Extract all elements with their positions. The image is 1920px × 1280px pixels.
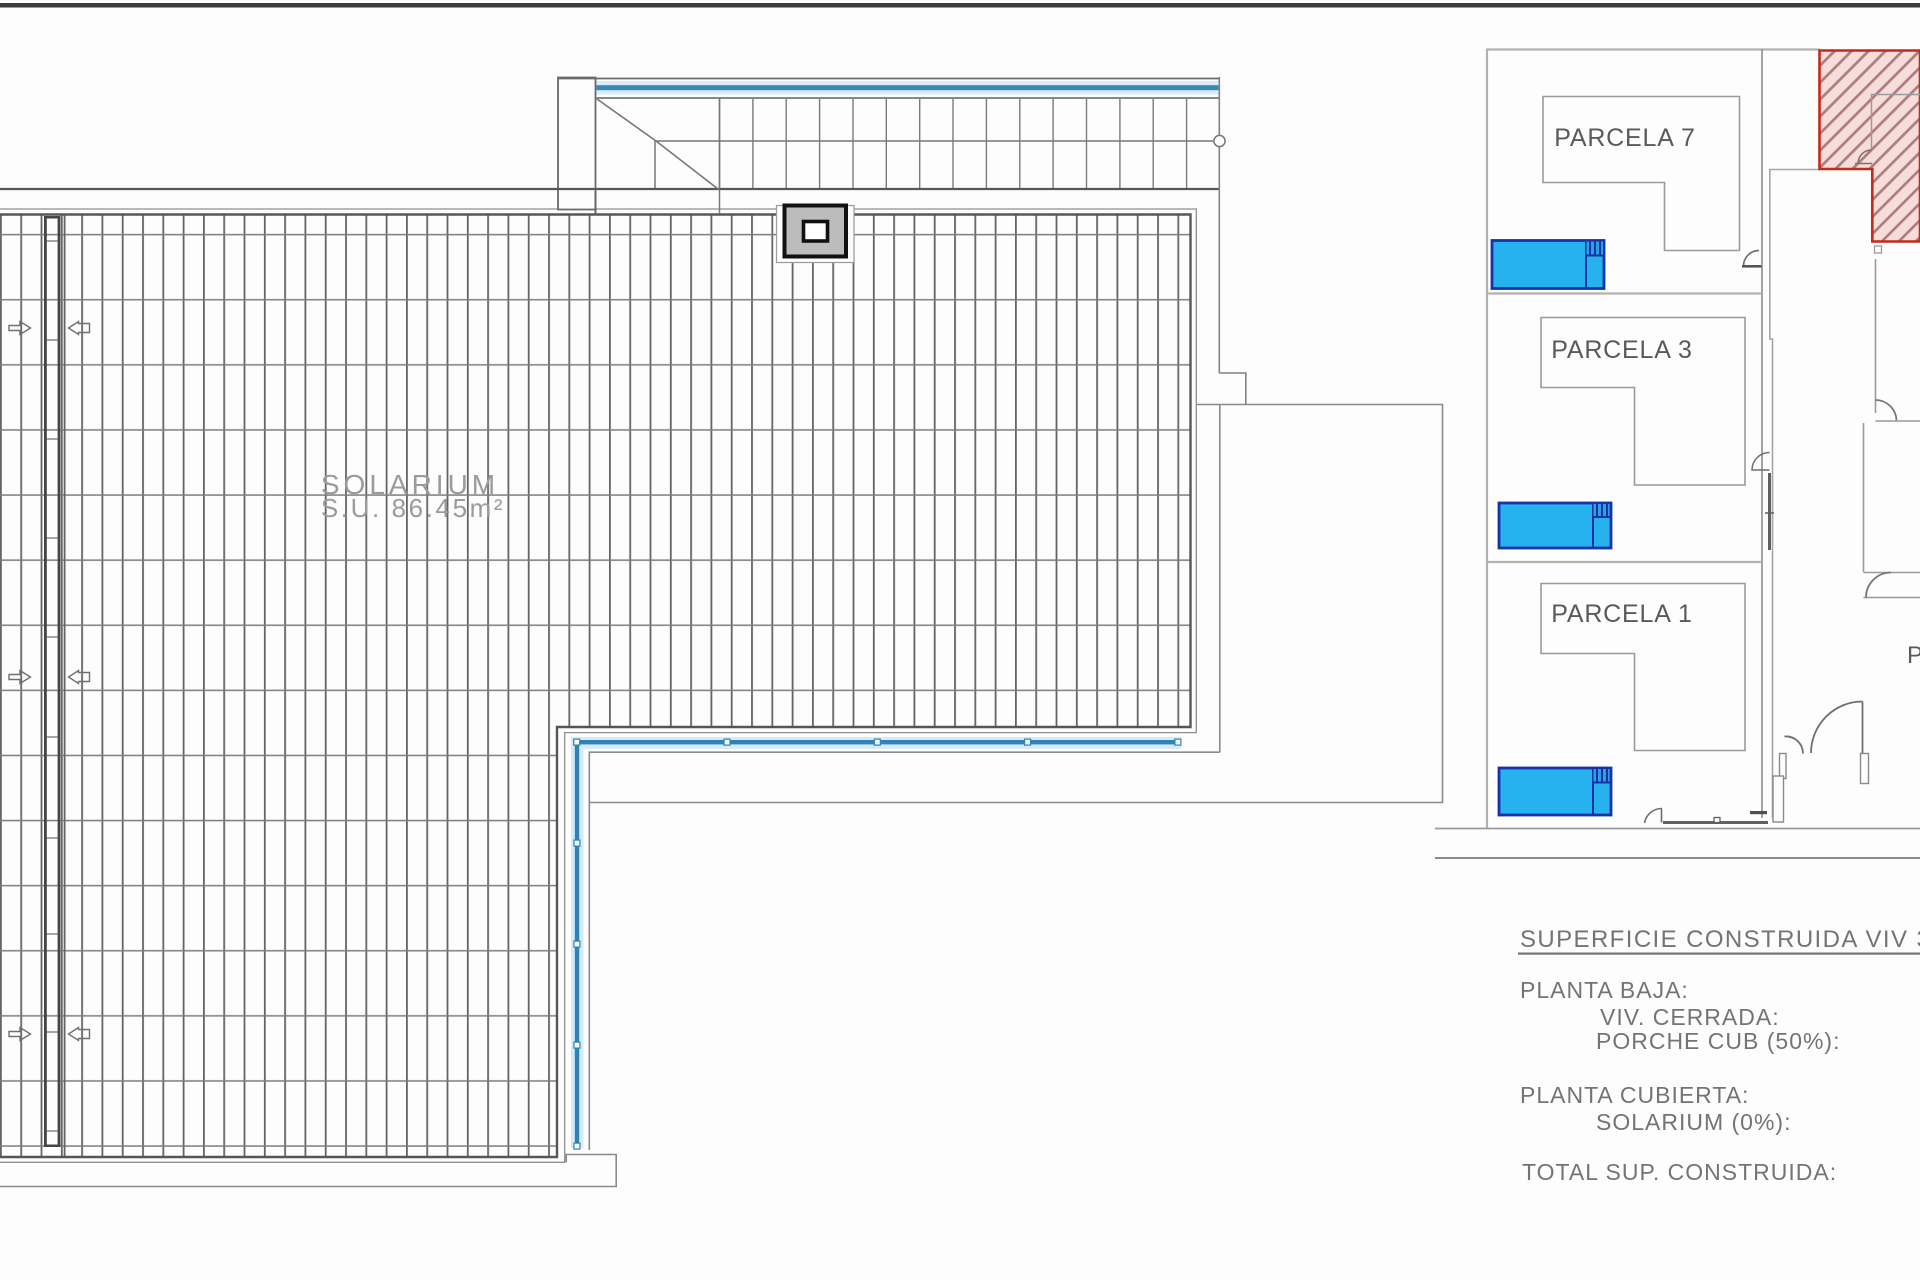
svg-text:P: P: [1907, 642, 1920, 669]
svg-text:PORCHE CUB (50%):: PORCHE CUB (50%):: [1596, 1028, 1840, 1054]
svg-text:VIV. CERRADA:: VIV. CERRADA:: [1600, 1004, 1780, 1030]
svg-text:PARCELA 3: PARCELA 3: [1551, 336, 1693, 364]
svg-text:PARCELA 1: PARCELA 1: [1551, 600, 1693, 628]
svg-text:PARCELA 7: PARCELA 7: [1554, 124, 1696, 152]
svg-text:PLANTA BAJA:: PLANTA BAJA:: [1520, 977, 1689, 1003]
svg-text:SOLARIUM (0%):: SOLARIUM (0%):: [1596, 1109, 1791, 1135]
svg-text:SUPERFICIE CONSTRUIDA VIV 3: SUPERFICIE CONSTRUIDA VIV 3: [1520, 926, 1920, 953]
svg-text:PLANTA CUBIERTA:: PLANTA CUBIERTA:: [1520, 1082, 1749, 1108]
svg-text:TOTAL SUP. CONSTRUIDA:: TOTAL SUP. CONSTRUIDA:: [1522, 1159, 1837, 1185]
svg-text:S.U. 86.45m²: S.U. 86.45m²: [321, 493, 505, 523]
